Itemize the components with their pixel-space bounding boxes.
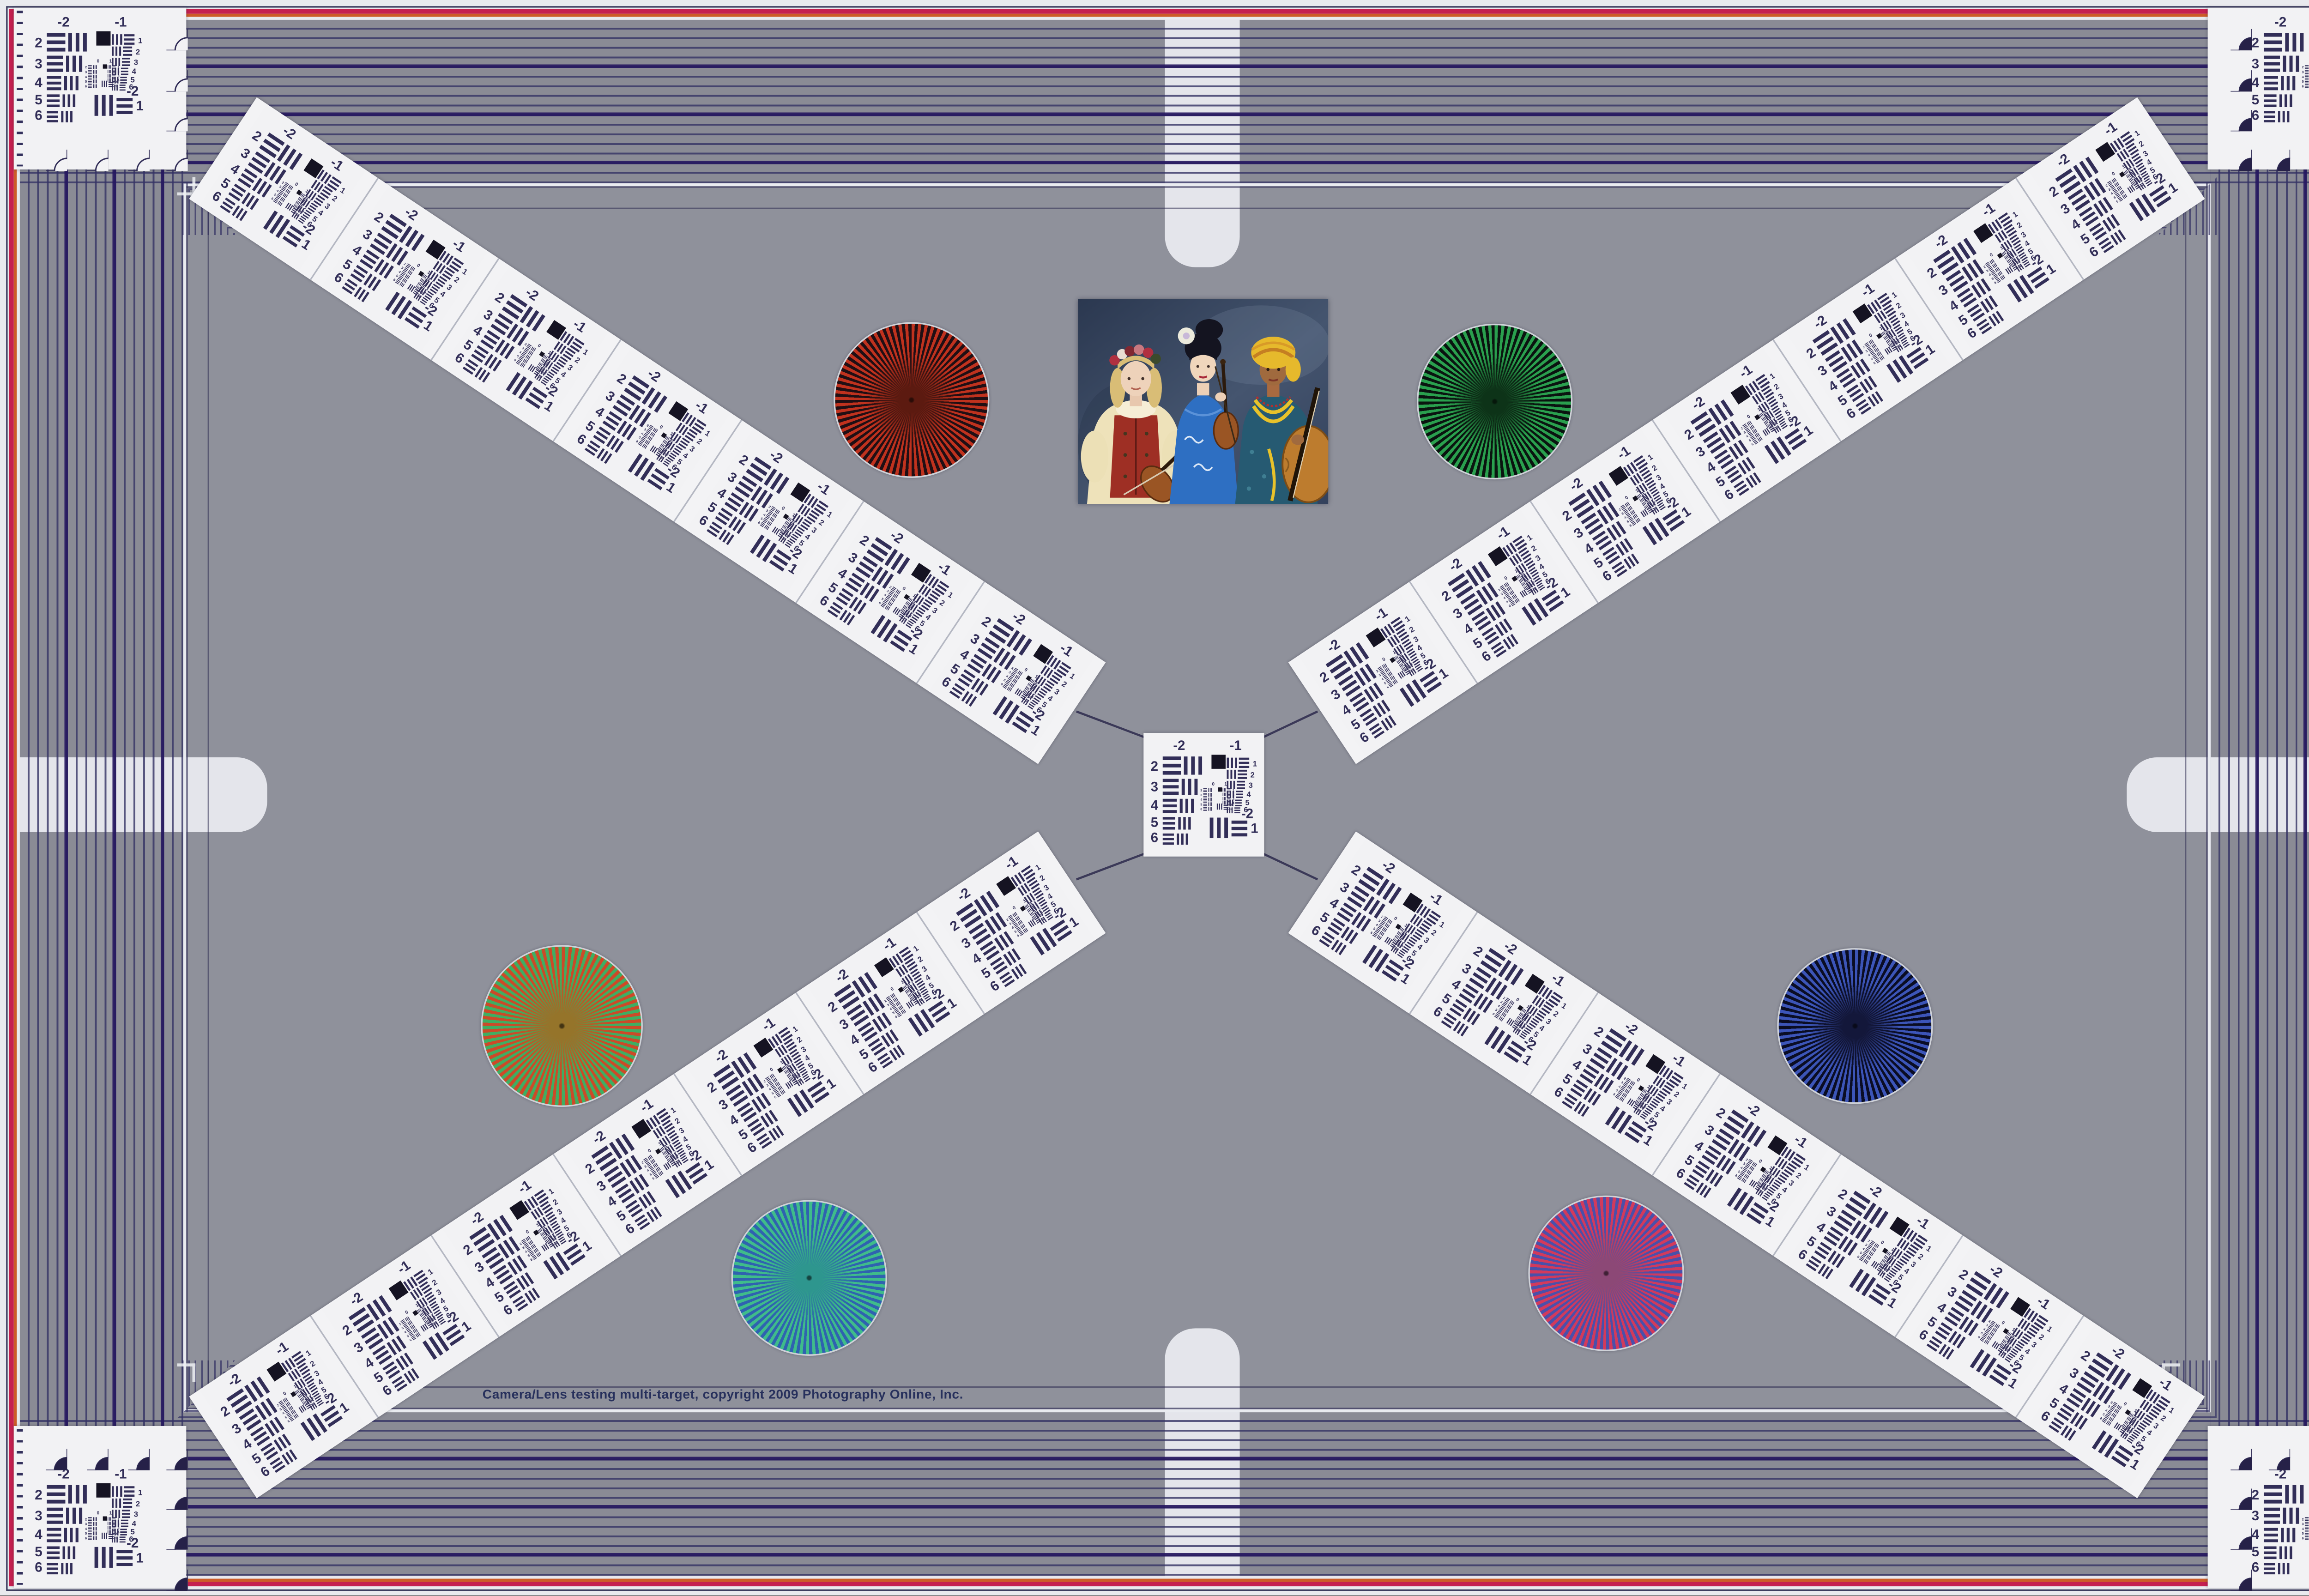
- band-top-lines: [20, 20, 2309, 183]
- star-red-black: [834, 322, 989, 478]
- quadrant-circle-icon: [142, 1545, 187, 1591]
- corner-target-top-left-usaf-chart: [29, 12, 148, 131]
- center-resolution-chart: [1143, 733, 1264, 857]
- miter-white-chevron-icon: [177, 1363, 196, 1382]
- quadrant-circle-icon: [142, 85, 187, 131]
- corner-target-bottom-right: [2208, 1426, 2309, 1588]
- page-scaler: Camera/Lens testing multi-target, copyri…: [0, 0, 2309, 1596]
- quadrant-circle-icon: [2206, 1464, 2252, 1510]
- test-portrait-photo: [1078, 299, 1328, 504]
- corner-target-bottom-right-usaf-chart: [2246, 1464, 2309, 1584]
- corner-target-top-right: [2208, 8, 2309, 169]
- band-bottom-lines: [20, 1412, 2309, 1576]
- quadrant-circle-icon: [63, 1425, 109, 1470]
- quadrant-circle-icon: [2206, 5, 2252, 50]
- band-inner-white-line: [183, 183, 187, 1412]
- quadrant-circle-icon: [2206, 1425, 2252, 1470]
- star-red-green: [481, 945, 642, 1106]
- quadrant-circle-icon: [21, 1425, 67, 1470]
- quadrant-circle-icon: [2206, 1504, 2252, 1550]
- quadrant-circle-icon: [142, 1464, 187, 1510]
- quadrant-circle-icon: [21, 125, 67, 171]
- corner-target-top-right-usaf-chart: [2246, 12, 2309, 131]
- quadrant-circle-icon: [63, 125, 109, 171]
- band-inner-dark-line: [183, 1407, 2211, 1409]
- band-inner-white-line: [183, 183, 2211, 187]
- quadrant-circle-icon: [2206, 1545, 2252, 1591]
- band-left-lines: [20, 20, 183, 1576]
- band-inner-dark-line: [2206, 183, 2207, 1412]
- quadrant-circle-icon: [2206, 85, 2252, 131]
- star-blue-black: [1777, 948, 1933, 1104]
- corner-target-bottom-left-usaf-chart: [29, 1464, 148, 1584]
- band-inner-dark-line: [183, 187, 2211, 188]
- band-inner-dark-line: [187, 183, 188, 1412]
- corner-target-top-left: [14, 8, 187, 169]
- quadrant-circle-icon: [2206, 46, 2252, 91]
- copyright-text: Camera/Lens testing multi-target, copyri…: [483, 1386, 963, 1402]
- quadrant-circle-icon: [142, 5, 187, 50]
- band-inner-white-line: [183, 1409, 2211, 1412]
- band-right-lines: [2211, 20, 2309, 1576]
- quadrant-circle-icon: [142, 125, 187, 171]
- corner-target-bottom-left: [14, 1426, 187, 1588]
- star-green-black: [1417, 324, 1572, 479]
- quadrant-circle-icon: [142, 46, 187, 91]
- star-green-blue: [731, 1200, 887, 1356]
- band-inner-white-line: [2207, 183, 2211, 1412]
- camera-test-chart: Camera/Lens testing multi-target, copyri…: [0, 0, 2309, 1596]
- corner-target-top-left-ruler-ticks: [16, 11, 23, 166]
- star-red-blue: [1528, 1196, 1684, 1351]
- quadrant-circle-icon: [142, 1504, 187, 1550]
- quadrant-circle-icon: [2206, 125, 2252, 171]
- corner-target-bottom-left-ruler-ticks: [16, 1429, 23, 1585]
- quadrant-circle-icon: [142, 1425, 187, 1470]
